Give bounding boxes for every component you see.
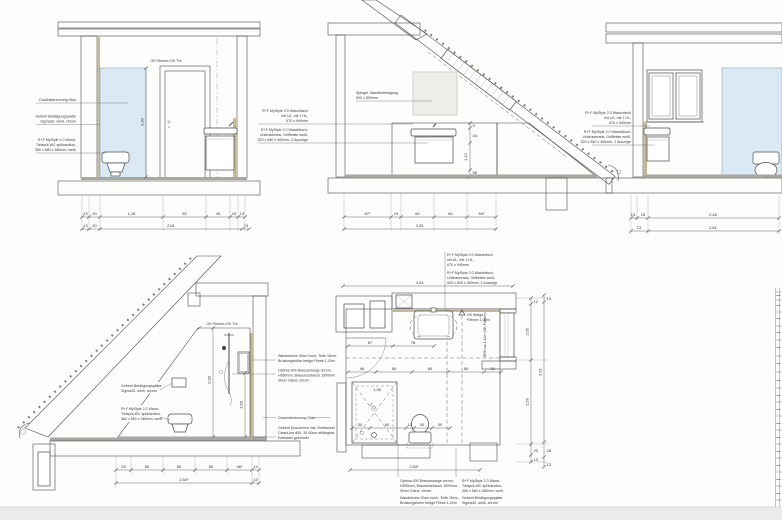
dim-label: 13: [547, 296, 552, 301]
annotation-glas: Duschabtrennung Glas: [278, 416, 315, 420]
dim-chain-horizontal: 13 20 1,18 80 45 15 13 13 20 2,81 13: [80, 196, 251, 231]
dim-label: 13: [253, 464, 258, 469]
window-plan: [500, 313, 514, 357]
dim-label: 13: [407, 422, 412, 427]
dim-chain-horizontal: 87* 19 60 60 54* 2,81: [342, 193, 498, 231]
annotation-bp: Geberit Betätigungsplatte: [121, 384, 162, 388]
annotation-bp: Sigma30, weiß, chrom: [462, 501, 498, 505]
annotation-bs: H950mm, Brauseschlauch 1600mm: [400, 484, 457, 488]
dim-label: 13: [637, 225, 642, 230]
annotation-us: R+F MyStyle 2.0 Waschtisch-: [447, 271, 495, 275]
shower-plan: 1,38 1,21: [352, 382, 397, 443]
annotation-dr: Geberit Duschrinne inkl. Rohbauset: [278, 426, 335, 430]
annotation-spiegel: 800 x 800mm: [356, 96, 378, 100]
dim-label: 1,56: [525, 397, 530, 406]
dim-label: 20: [92, 211, 97, 216]
dim-label: 58: [473, 170, 478, 175]
ceiling-beam: [196, 283, 268, 296]
annotation-block-inside: Geberit Betätigungsplatte Sigma30, weiß,…: [120, 382, 172, 422]
dim-label: 1,18: [128, 211, 137, 216]
dim-chain-horizontal: 13 15 2,46 13 2,61: [629, 195, 781, 234]
drawing-sheet: OK Fliesen=OK Tür 2,30 Duschabtrennung G…: [0, 0, 782, 520]
door-elevation: [160, 66, 210, 178]
annotation-wt: R+F MyStyle 2.0 Waschtisch: [585, 111, 631, 115]
annotation-bs: Optima 400 Brausestange chrom,: [278, 369, 332, 373]
dim-chain-vertical: 9 44 1,12 58: [463, 121, 478, 178]
dim-label: 60: [415, 211, 420, 216]
annotation-wc: 360 x 560 x 360mm, weiß: [462, 489, 504, 493]
window: [644, 70, 704, 122]
annotation-wn: Wandnische 30cm hoch, Tiefe 15cm,: [400, 496, 459, 500]
dim-label: 60: [448, 211, 453, 216]
title-block-edge: [776, 288, 782, 520]
dim-label: 12: [534, 299, 539, 304]
annotation-block-top: R+F MyStyle 2.0 Waschtisch mit UL, mit 1…: [447, 253, 497, 285]
dim-label: 87: [368, 340, 373, 345]
floor-drain: [372, 433, 377, 438]
mirror: [413, 72, 457, 115]
flush-plate: [172, 378, 186, 387]
paper-bottom-edge: [0, 507, 782, 520]
annotation-wc: Tiefspül-WC spülrandlos,: [36, 143, 76, 147]
annotation-brh: BRH ca.1,12m (OK Fliesen): [483, 312, 487, 357]
annotation-wn: Brüstungshöhe fertige Fliese 1,20m: [400, 501, 457, 505]
dim-label: 60: [177, 464, 182, 469]
dim-label: 1,05: [525, 327, 530, 336]
screed-layer: [643, 175, 782, 178]
dim-label: 13: [244, 223, 249, 228]
wall-hung-wc: [168, 414, 192, 432]
annotation-wc: 360 x 560 x 360mm, weiß: [121, 417, 163, 421]
gutter-profile: [21, 430, 26, 435]
annotation-block-bottom: Optima 400 Brausestange chrom, H950mm, B…: [400, 479, 504, 505]
wc-plan: [407, 415, 433, 449]
dim-label: 28: [547, 448, 552, 453]
annotation-bp: Geberit Betätigungsplatte: [35, 115, 76, 119]
washbasin-cabinet: [644, 128, 670, 161]
wall-right: [500, 357, 516, 361]
annotation-wt: 670 x 940mm: [286, 119, 308, 123]
dim-label: 28: [490, 366, 495, 371]
annotation-bs: H950mm, Brauseschlauch 1600mm: [278, 374, 335, 378]
dim-label: 80: [182, 211, 187, 216]
annotation-bs: Silver Glanz, chrom: [400, 489, 431, 493]
annotation-wt: 670 x 940mm: [447, 263, 469, 267]
shower-head: [222, 346, 226, 350]
dim-label: 15: [232, 211, 237, 216]
annotation-wt: 670 x 940mm: [609, 121, 631, 125]
shower-hose: [225, 360, 232, 406]
dim-label: 46*: [236, 464, 242, 469]
dim-label: 13: [547, 462, 552, 467]
dim-label: 78: [411, 340, 416, 345]
dim-label: 1,38: [373, 387, 382, 392]
dim-label: 60: [209, 464, 214, 469]
annotation-wt: mit UL, mit 1 HL,: [281, 114, 308, 118]
dim-label: 13: [240, 211, 245, 216]
ceiling-band: [58, 22, 260, 28]
dim-label: 2,81: [167, 223, 176, 228]
washbasin-cabinet: [411, 124, 456, 164]
ceiling-band: [606, 34, 782, 43]
dim-label: 30: [438, 422, 443, 427]
dim-chain-vertical: 12 1,05 1,56 20 13 13 2,61 28 13: [516, 293, 552, 468]
dim-label: 46: [360, 366, 365, 371]
dim-label: 13: [631, 212, 636, 217]
section-d-elevation: Geberit Betätigungsplatte Sigma30, weiß,…: [18, 256, 337, 490]
dim-label: 9: [473, 123, 476, 128]
shower-set: [219, 333, 234, 406]
annotation-wt: R+F MyStyle 2.0 Waschtisch: [447, 253, 493, 257]
dim-label: 19: [394, 211, 399, 216]
dim-label: 2,00: [207, 375, 212, 384]
dim-label: 45: [216, 211, 221, 216]
floor-band: [50, 441, 300, 456]
dim-label: 13: [253, 477, 258, 482]
annotation-us: 520 x 840 x 460mm, 2 Auszüge: [581, 140, 631, 144]
annotation-wn: Wandnische 30cm hoch, Tiefe 15cm,: [278, 354, 337, 358]
annotation-us: Unterschrank, Griffleiste weiß,: [583, 135, 631, 139]
masonry-pier: [546, 178, 567, 210]
annotation-ok-fliesen: OK Fliesen=OK Tür: [206, 322, 238, 326]
dim-label: 2,81: [416, 223, 425, 228]
washbasin-plan: [410, 308, 457, 339]
annotation-wc: R+F MyStyle 2.0 Wand-: [121, 407, 160, 411]
floor-band: [606, 178, 782, 193]
cistern-projection: [407, 443, 433, 448]
hand-shower: [219, 370, 222, 373]
ceiling-band: [328, 23, 420, 35]
dim-label: 2,46: [709, 212, 718, 217]
dim-label: 60: [428, 366, 433, 371]
wall-left: [633, 43, 643, 177]
dim-label: 60: [392, 366, 397, 371]
dim-label: 87*: [364, 211, 370, 216]
annotation-wc: Tiefspül-WC spülrandlos,: [462, 484, 502, 488]
annotation-okf: OK fertige: [467, 313, 483, 317]
ceiling-band: [606, 23, 782, 32]
ceiling-band: [58, 29, 260, 36]
mosaic-tile-strip: [97, 36, 100, 178]
shaft-symbol: [396, 295, 412, 308]
dim-label: 54*: [478, 211, 484, 216]
wall-right: [253, 296, 266, 437]
dim-label: 20: [92, 223, 97, 228]
section-c-elevation: R+F MyStyle 2.0 Waschtisch mit UL, mit 1…: [581, 23, 782, 234]
annotation-wc: R+F MyStyle 2.0 Wand-: [38, 138, 77, 142]
mosaic-tile-strip: [250, 333, 253, 437]
annotation-bs: Silver Glanz, chrom: [278, 379, 309, 383]
faucet: [431, 308, 436, 312]
dim-label: 13: [83, 211, 88, 216]
annotation-us: R+F MyStyle 2.0 Waschtisch-: [261, 128, 309, 132]
dim-label: 2,54*: [179, 477, 189, 482]
dim-label: 13: [83, 223, 88, 228]
dim-label: 15: [641, 212, 646, 217]
annotation-bp: Geberit Betätigungsplatte: [462, 496, 503, 500]
dim-label: 1,58: [239, 400, 244, 409]
screed-layer: [50, 438, 267, 442]
annotation-bp: Sigma30, weiß, chrom: [40, 120, 76, 124]
dim-label: 60: [385, 422, 390, 427]
dim-label: 1,12: [463, 152, 468, 161]
wall-bottom: [362, 445, 430, 458]
annotation-spiegel: Spiegel, Wandbefestigung: [356, 91, 398, 95]
section-b-elevation: 9 44 1,12 58 Spiegel, Wandbefestigung 80…: [258, 0, 621, 231]
faucet: [433, 124, 436, 128]
dim-chain-horizontal: 28 60 60 60 46* 13 2,54* 13: [114, 457, 261, 487]
dim-label: 60: [464, 366, 469, 371]
rafter: [362, 0, 427, 40]
dim-label: 2,61: [538, 367, 543, 376]
annotation-wc: Tiefspül-WC spülrandlos,: [121, 412, 161, 416]
annotation-glas: Duschabtrennung Glas: [39, 98, 76, 102]
dim-label: 2,30: [140, 117, 145, 126]
shower-valve: [360, 431, 364, 435]
dim-label: 2,61: [709, 225, 718, 230]
dim-label: 60: [145, 464, 150, 469]
annotation-dr: CleanLine d50, 30-90cm ablängbar,: [278, 431, 335, 435]
dim-label: 30: [420, 422, 425, 427]
annotation-wc: R+F MyStyle 2.0 Wand-: [462, 479, 501, 483]
floor-band: [328, 178, 612, 193]
annotation-ok-fliesen: OK Fliesen=OK Tür: [150, 59, 182, 63]
wall-bottom-right: [470, 443, 497, 461]
wall-step: [482, 361, 516, 369]
annotation-wn: Brüstungshöhe fertige Fliese 1,20m: [278, 359, 335, 363]
washbasin-cabinet: [204, 122, 237, 170]
dim-label: 20: [534, 448, 539, 453]
dim-label: 13: [534, 457, 539, 462]
annotation-us: Unterschrank, Griffleiste weiß,: [260, 133, 308, 137]
floor-plan: R+F MyStyle 2.0 Waschtisch mit UL, mit 1…: [336, 252, 552, 505]
annotation-wt: R+F MyStyle 2.0 Waschtisch: [262, 109, 308, 113]
drawing-canvas: OK Fliesen=OK Tür 2,30 Duschabtrennung G…: [0, 0, 782, 520]
dim-label: 30: [358, 422, 363, 427]
annotation-bs: Optima 400 Brausestange chrom,: [400, 479, 454, 483]
screed-layer: [81, 177, 247, 180]
wall-left: [81, 36, 97, 178]
wall-right: [237, 36, 247, 178]
wall-left: [336, 35, 345, 177]
dim-label: 2,54*: [409, 464, 419, 469]
annotation-us: Unterschrank, Griffleiste weiß,: [447, 276, 495, 280]
dim-label: 28: [121, 464, 126, 469]
screed-layer: [345, 175, 597, 178]
annotation-wt: mit UL, mit 1 HL,: [447, 258, 474, 262]
floor-band: [58, 181, 260, 195]
section-a-elevation: OK Fliesen=OK Tür 2,30 Duschabtrennung G…: [35, 22, 260, 231]
annotation-wt: mit UL, mit 1 HL,: [604, 116, 631, 120]
annotation-us: 520 x 840 x 460mm, 2 Auszüge: [258, 138, 308, 142]
door-handle: [168, 121, 170, 123]
roof-battens: [18, 258, 191, 428]
purlin: [188, 293, 200, 306]
wall-left: [337, 383, 346, 452]
faucet: [229, 122, 233, 126]
annotation-us: R+F MyStyle 2.0 Waschtisch-: [584, 130, 632, 134]
annotation-dr: Edelstahl gebürstet: [278, 436, 309, 440]
dim-label: 44: [473, 133, 478, 138]
dim-label: 2,81: [416, 280, 425, 285]
annotation-us: 520 x 840 x 460mm, 2 Auszüge: [447, 281, 497, 285]
door-lock: [168, 126, 169, 127]
annotation-wc: 360 x 560 x 360mm, weiß: [35, 148, 77, 152]
wall-right: [500, 309, 516, 313]
annotation-bp: Sigma30, weiß, chrom: [121, 389, 157, 393]
